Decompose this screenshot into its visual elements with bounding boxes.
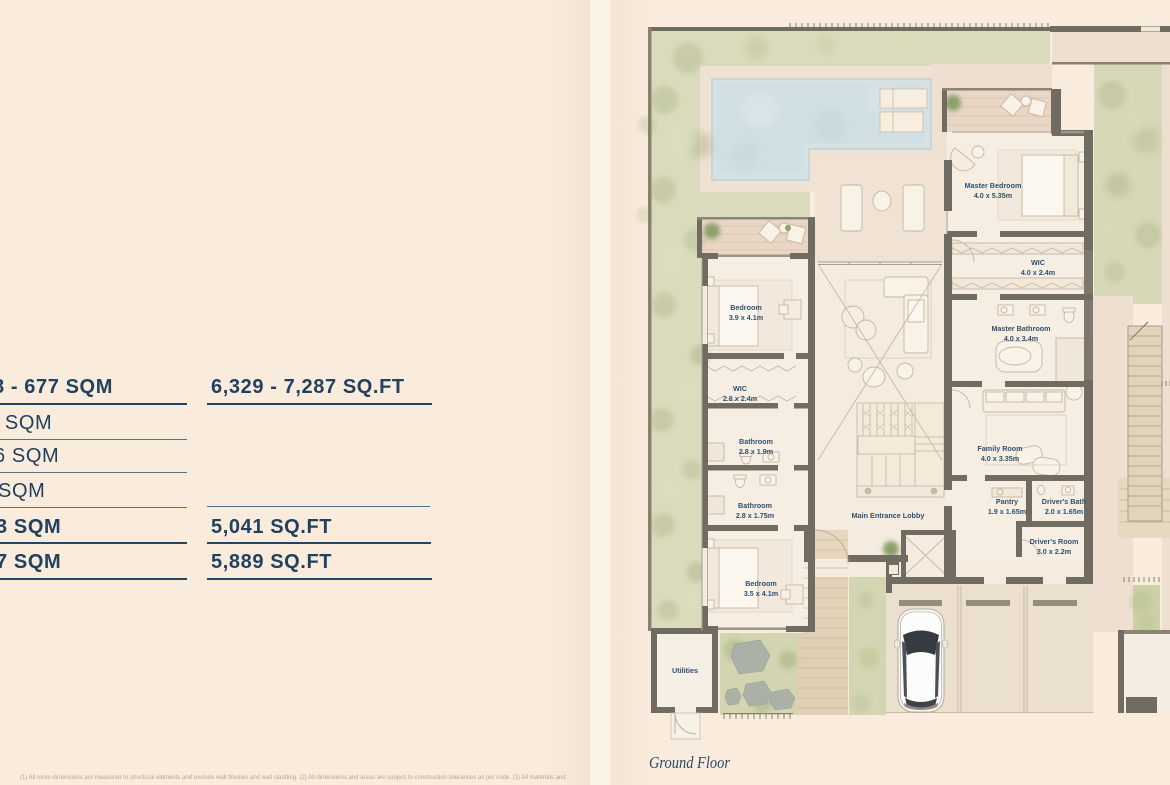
svg-text:Bedroom: Bedroom xyxy=(730,303,762,312)
svg-text:Driver's Bath: Driver's Bath xyxy=(1042,497,1086,506)
svg-text:Master Bathroom: Master Bathroom xyxy=(991,324,1050,333)
svg-text:Bedroom: Bedroom xyxy=(745,579,777,588)
svg-text:Bathroom: Bathroom xyxy=(739,437,773,446)
svg-text:Driver's Room: Driver's Room xyxy=(1030,537,1079,546)
svg-text:Main Entrance Lobby: Main Entrance Lobby xyxy=(852,511,925,520)
svg-text:4.0 x 5.35m: 4.0 x 5.35m xyxy=(974,191,1012,200)
svg-text:3.5 x 4.1m: 3.5 x 4.1m xyxy=(744,589,778,598)
svg-text:4.0 x 3.4m: 4.0 x 3.4m xyxy=(1004,334,1038,343)
svg-text:1.9 x 1.65m: 1.9 x 1.65m xyxy=(988,507,1026,516)
svg-text:2.8 x 1.9m: 2.8 x 1.9m xyxy=(739,447,773,456)
svg-text:2.8 x 2.4m: 2.8 x 2.4m xyxy=(723,394,757,403)
svg-text:Utilities: Utilities xyxy=(672,666,698,675)
svg-text:2.0 x 1.65m: 2.0 x 1.65m xyxy=(1045,507,1083,516)
svg-text:4.0 x 3.35m: 4.0 x 3.35m xyxy=(981,454,1019,463)
svg-text:Pantry: Pantry xyxy=(996,497,1018,506)
svg-text:Bathroom: Bathroom xyxy=(738,501,772,510)
svg-text:2.8 x 1.75m: 2.8 x 1.75m xyxy=(736,511,774,520)
svg-text:WIC: WIC xyxy=(733,384,747,393)
svg-text:4.0 x 2.4m: 4.0 x 2.4m xyxy=(1021,268,1055,277)
svg-text:3.0 x 2.2m: 3.0 x 2.2m xyxy=(1037,547,1071,556)
svg-text:3.9 x 4.1m: 3.9 x 4.1m xyxy=(729,313,763,322)
svg-text:Master Bedroom: Master Bedroom xyxy=(965,181,1022,190)
svg-text:WIC: WIC xyxy=(1031,258,1045,267)
svg-text:Family Room: Family Room xyxy=(977,444,1022,453)
